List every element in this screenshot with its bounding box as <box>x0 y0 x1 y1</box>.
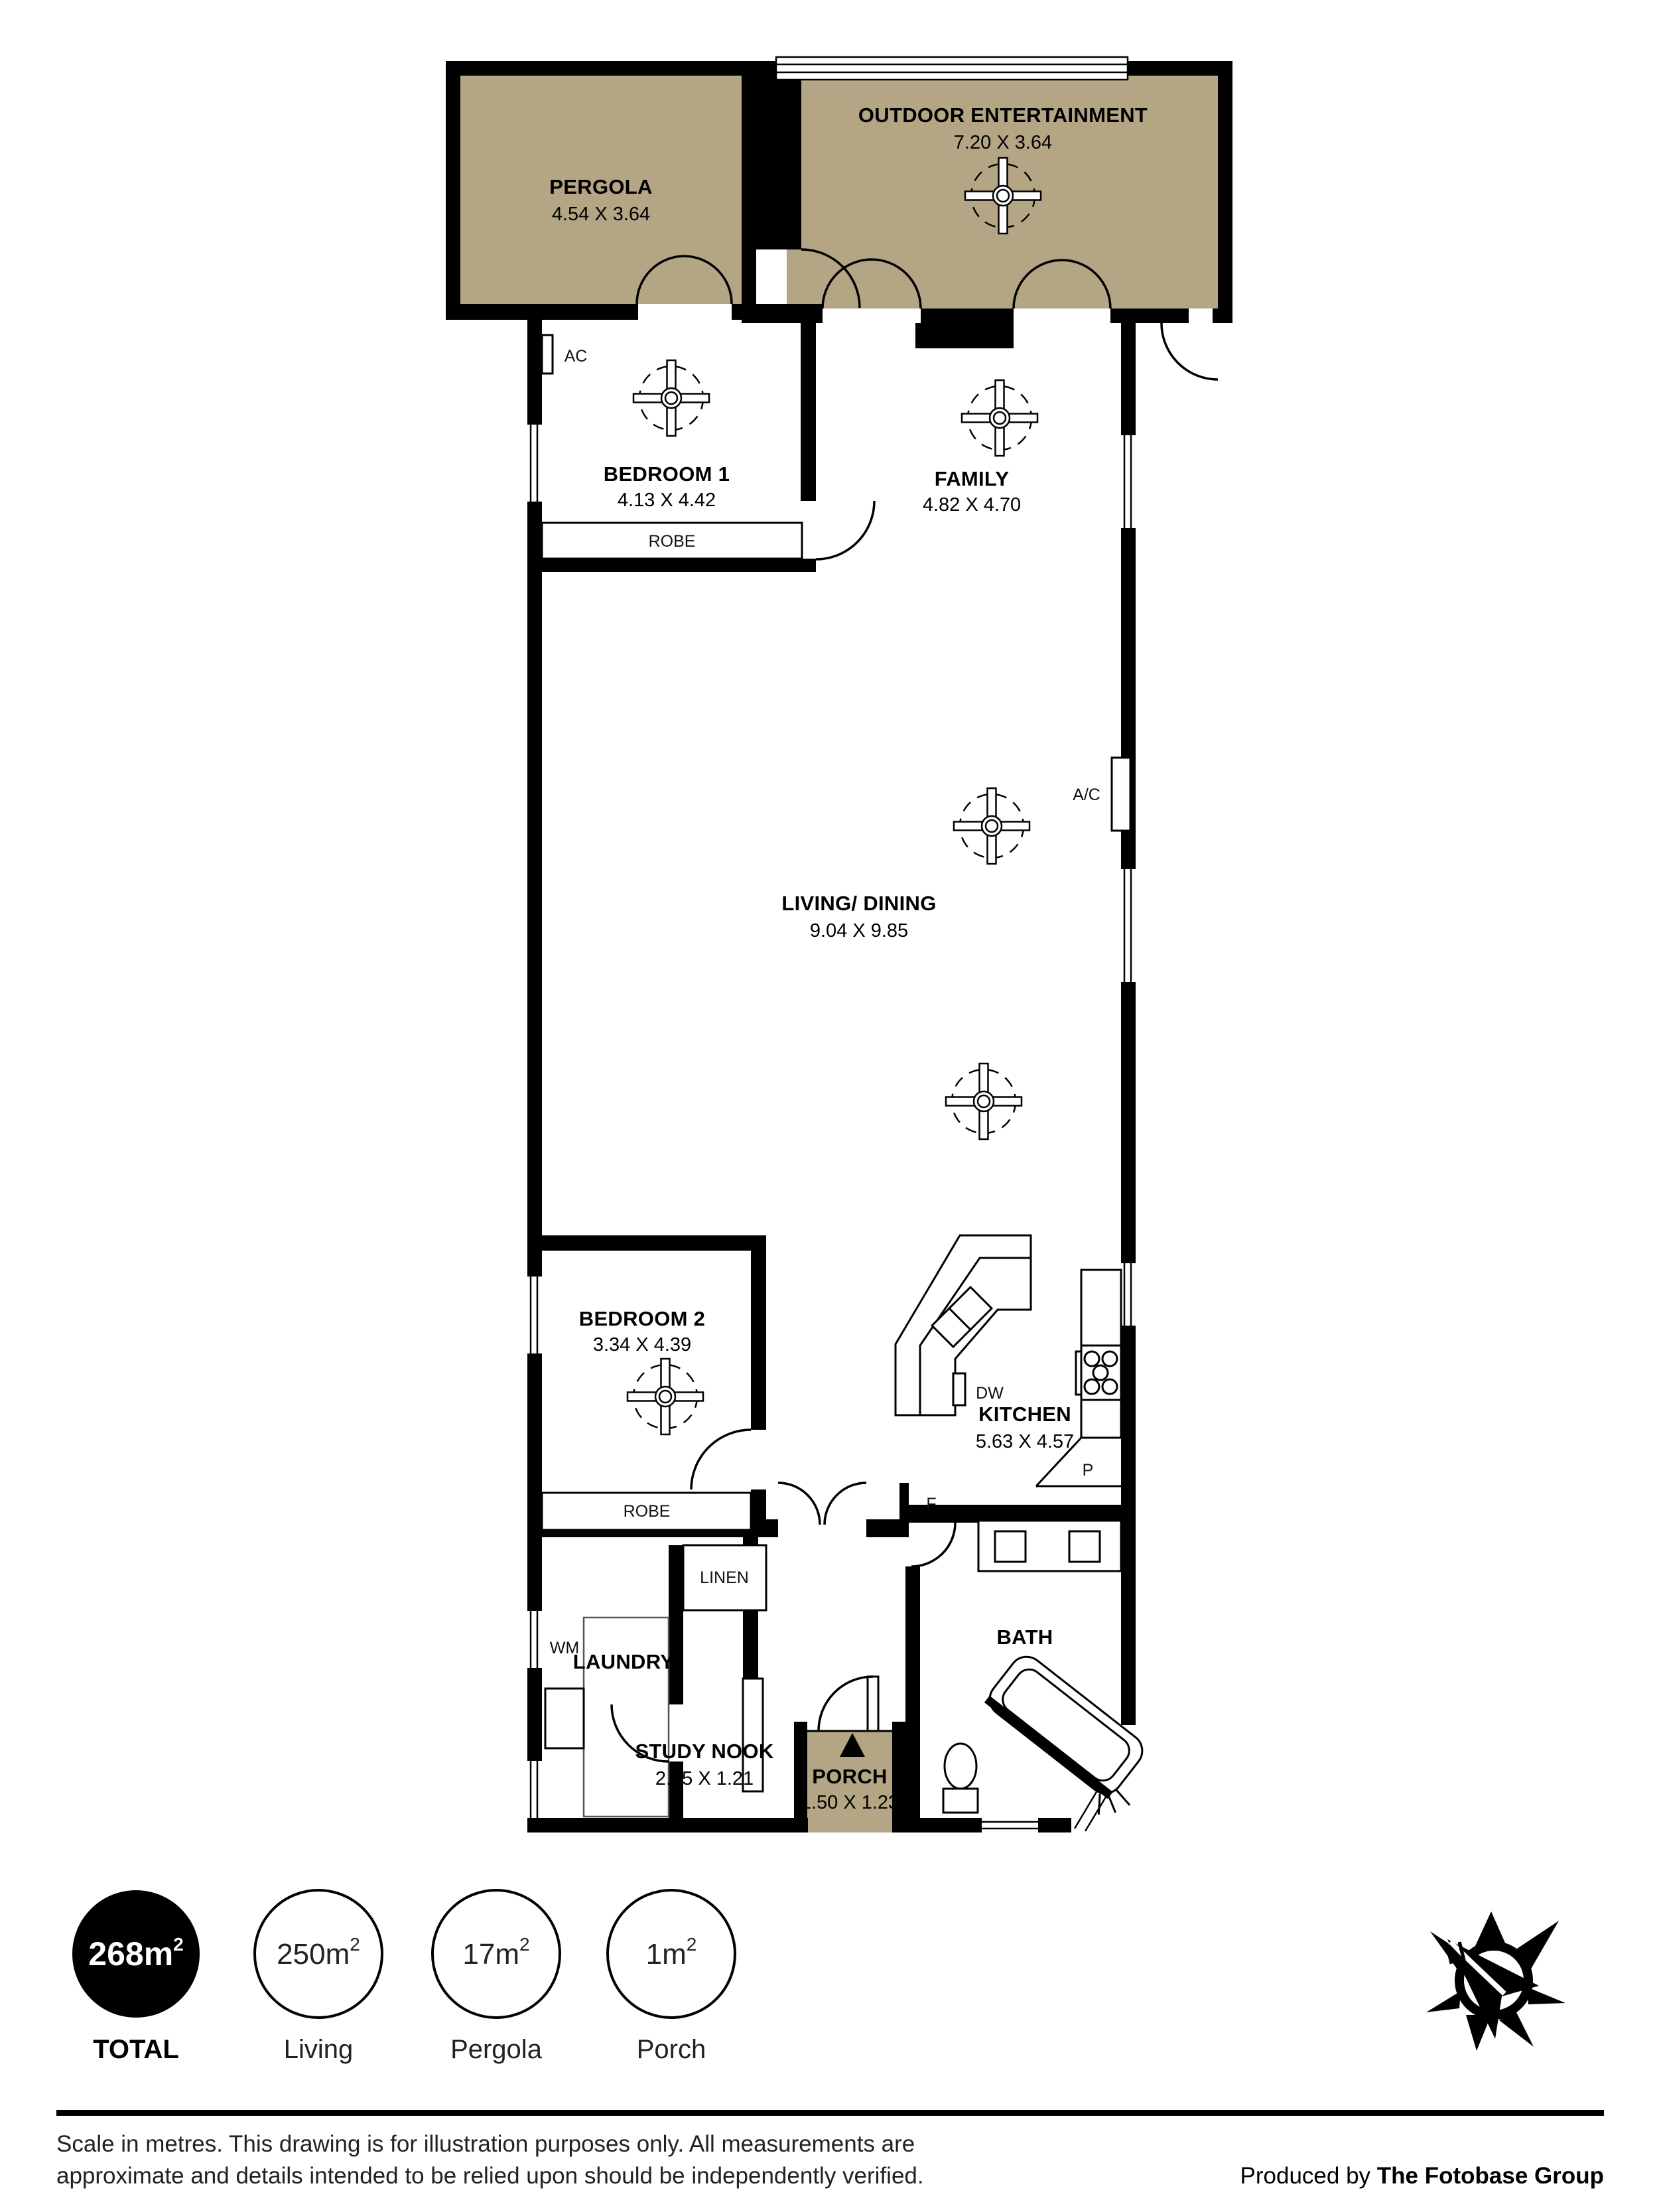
badge-total-sup: 2 <box>173 1934 184 1955</box>
bedroom2-label: BEDROOM 2 <box>579 1307 705 1330</box>
ceiling-fan-icon <box>954 788 1029 864</box>
bathtub-icon <box>972 1650 1165 1827</box>
bedroom1-dims: 4.13 X 4.42 <box>618 490 716 511</box>
badge-total-value: 268m <box>88 1935 173 1972</box>
producer-name: The Fotobase Group <box>1377 2163 1604 2189</box>
badge-total-label: TOTAL <box>93 2035 179 2064</box>
dw-label: DW <box>976 1384 1004 1403</box>
produced-by-text: Produced by <box>1240 2163 1377 2189</box>
vanity-basin-1 <box>995 1531 1026 1562</box>
bedroom2-dims: 3.34 X 4.39 <box>593 1334 691 1355</box>
svg-text:250m2: 250m2 <box>277 1934 360 1970</box>
study-label: STUDY NOOK <box>635 1740 773 1763</box>
producer-credit: Produced by The Fotobase Group <box>1240 2163 1604 2189</box>
floorplan-drawing: PERGOLA 4.54 X 3.64 OUTDOOR ENTERTAINMEN… <box>0 0 1659 2212</box>
kitchen-dims: 5.63 X 4.57 <box>976 1431 1074 1452</box>
family-label: FAMILY <box>935 467 1010 490</box>
fridge-label: F <box>926 1495 936 1513</box>
ceiling-fan-icon <box>946 1064 1022 1139</box>
dishwasher-icon <box>953 1373 965 1405</box>
pergola-dims: 4.54 X 3.64 <box>552 204 650 225</box>
ac2-label: A/C <box>1073 786 1100 804</box>
front-door-leaf <box>868 1677 878 1731</box>
outdoor-dims: 7.20 X 3.64 <box>954 132 1052 153</box>
bath-label: BATH <box>997 1625 1053 1649</box>
ac-unit2-icon <box>1112 758 1130 831</box>
footer: Scale in metres. This drawing is for ill… <box>56 2110 1604 2189</box>
badge-pergola-label: Pergola <box>450 2035 543 2064</box>
footer-divider <box>56 2110 1604 2116</box>
kitchen-bench-lower <box>1081 1400 1121 1438</box>
badge-porch-label: Porch <box>637 2035 706 2064</box>
study-dims: 2.05 X 1.21 <box>655 1768 754 1789</box>
pantry-label: P <box>1083 1461 1094 1480</box>
fixtures <box>542 335 1165 1826</box>
badge-living: 250m2 Living <box>255 1890 382 2064</box>
badge-living-value: 250m <box>277 1938 350 1970</box>
kitchen-bench <box>1081 1270 1121 1346</box>
robe2-label: ROBE <box>624 1502 671 1521</box>
washing-machine-icon <box>545 1689 584 1748</box>
compass-icon: N <box>1426 1911 1565 2051</box>
floorplan-sheet: PERGOLA 4.54 X 3.64 OUTDOOR ENTERTAINMEN… <box>0 0 1659 2212</box>
ceiling-fan-icon <box>962 380 1037 456</box>
badge-pergola-sup: 2 <box>519 1934 530 1955</box>
porch-dims: 1.50 X 1.23 <box>801 1792 899 1813</box>
disclaimer-line2: approximate and details intended to be r… <box>56 2163 924 2189</box>
badge-total: 268m2 TOTAL <box>72 1890 200 2064</box>
badge-living-sup: 2 <box>350 1934 360 1955</box>
linen-label: LINEN <box>700 1568 749 1587</box>
living-dims: 9.04 X 9.85 <box>810 920 908 941</box>
laundry-label: LAUNDRY <box>573 1650 675 1673</box>
badge-porch: 1m2 Porch <box>608 1890 735 2064</box>
cooktop-icon <box>1081 1346 1121 1400</box>
ceiling-fan-icon <box>628 1359 703 1434</box>
badge-pergola: 17m2 Pergola <box>432 1890 560 2064</box>
family-dims: 4.82 X 4.70 <box>923 494 1021 516</box>
badge-porch-value: 1m <box>646 1938 687 1970</box>
badge-porch-sup: 2 <box>687 1934 697 1955</box>
badge-pergola-value: 17m <box>462 1938 519 1970</box>
outdoor-label: OUTDOOR ENTERTAINMENT <box>858 104 1148 127</box>
ac-unit-icon <box>542 335 553 374</box>
ceiling-fan-icon <box>633 360 709 436</box>
ac-label: AC <box>564 347 588 366</box>
living-label: LIVING/ DINING <box>781 892 936 915</box>
bedroom1-label: BEDROOM 1 <box>604 462 730 486</box>
robe1-label: ROBE <box>649 532 696 551</box>
area-badges: 268m2 TOTAL 250m2 Living 17m2 Pergola 1m… <box>72 1890 735 2064</box>
kitchen-label: KITCHEN <box>978 1403 1071 1426</box>
pergola-label: PERGOLA <box>549 175 652 198</box>
toilet-icon <box>943 1744 978 1813</box>
porch-label: PORCH <box>812 1765 887 1788</box>
badge-living-label: Living <box>284 2035 354 2064</box>
wm-label: WM <box>550 1639 579 1657</box>
kitchen-island <box>896 1235 1031 1415</box>
vanity-basin-2 <box>1069 1531 1100 1562</box>
disclaimer-line1: Scale in metres. This drawing is for ill… <box>56 2131 915 2157</box>
svg-text:268m2: 268m2 <box>88 1934 183 1972</box>
